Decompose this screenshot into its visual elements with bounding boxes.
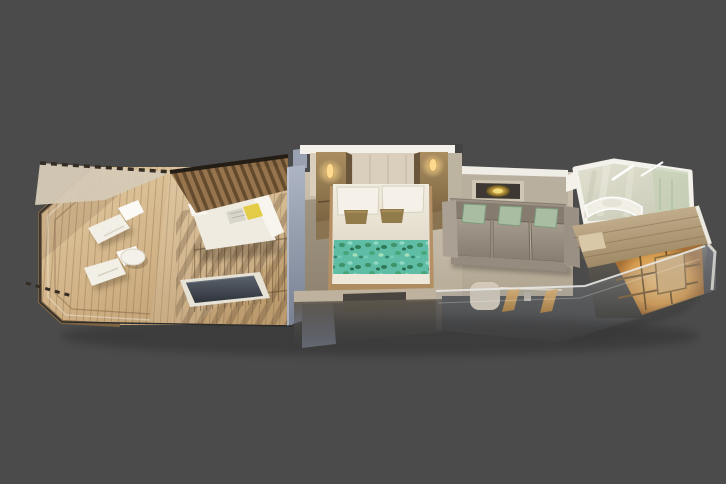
room-cabana <box>170 156 292 325</box>
green-pillow-3 <box>534 208 558 228</box>
sofa-cushion-3 <box>531 222 567 262</box>
green-pillow-1 <box>462 204 486 224</box>
floorplan-stage <box>0 0 726 484</box>
king-bed <box>328 184 434 298</box>
wall-sconce-right <box>429 159 437 172</box>
sofa <box>442 198 580 272</box>
green-pillow-2 <box>498 206 522 226</box>
sofa-arm-left <box>442 200 458 258</box>
wall-artwork <box>472 180 524 202</box>
suite-floorplan-render <box>0 0 726 484</box>
pillow-right <box>382 186 424 213</box>
round-table <box>121 249 145 265</box>
wall-sconce-left <box>326 164 334 179</box>
sofa-cushion-2 <box>493 220 530 260</box>
teal-leaf-blanket <box>333 240 429 276</box>
